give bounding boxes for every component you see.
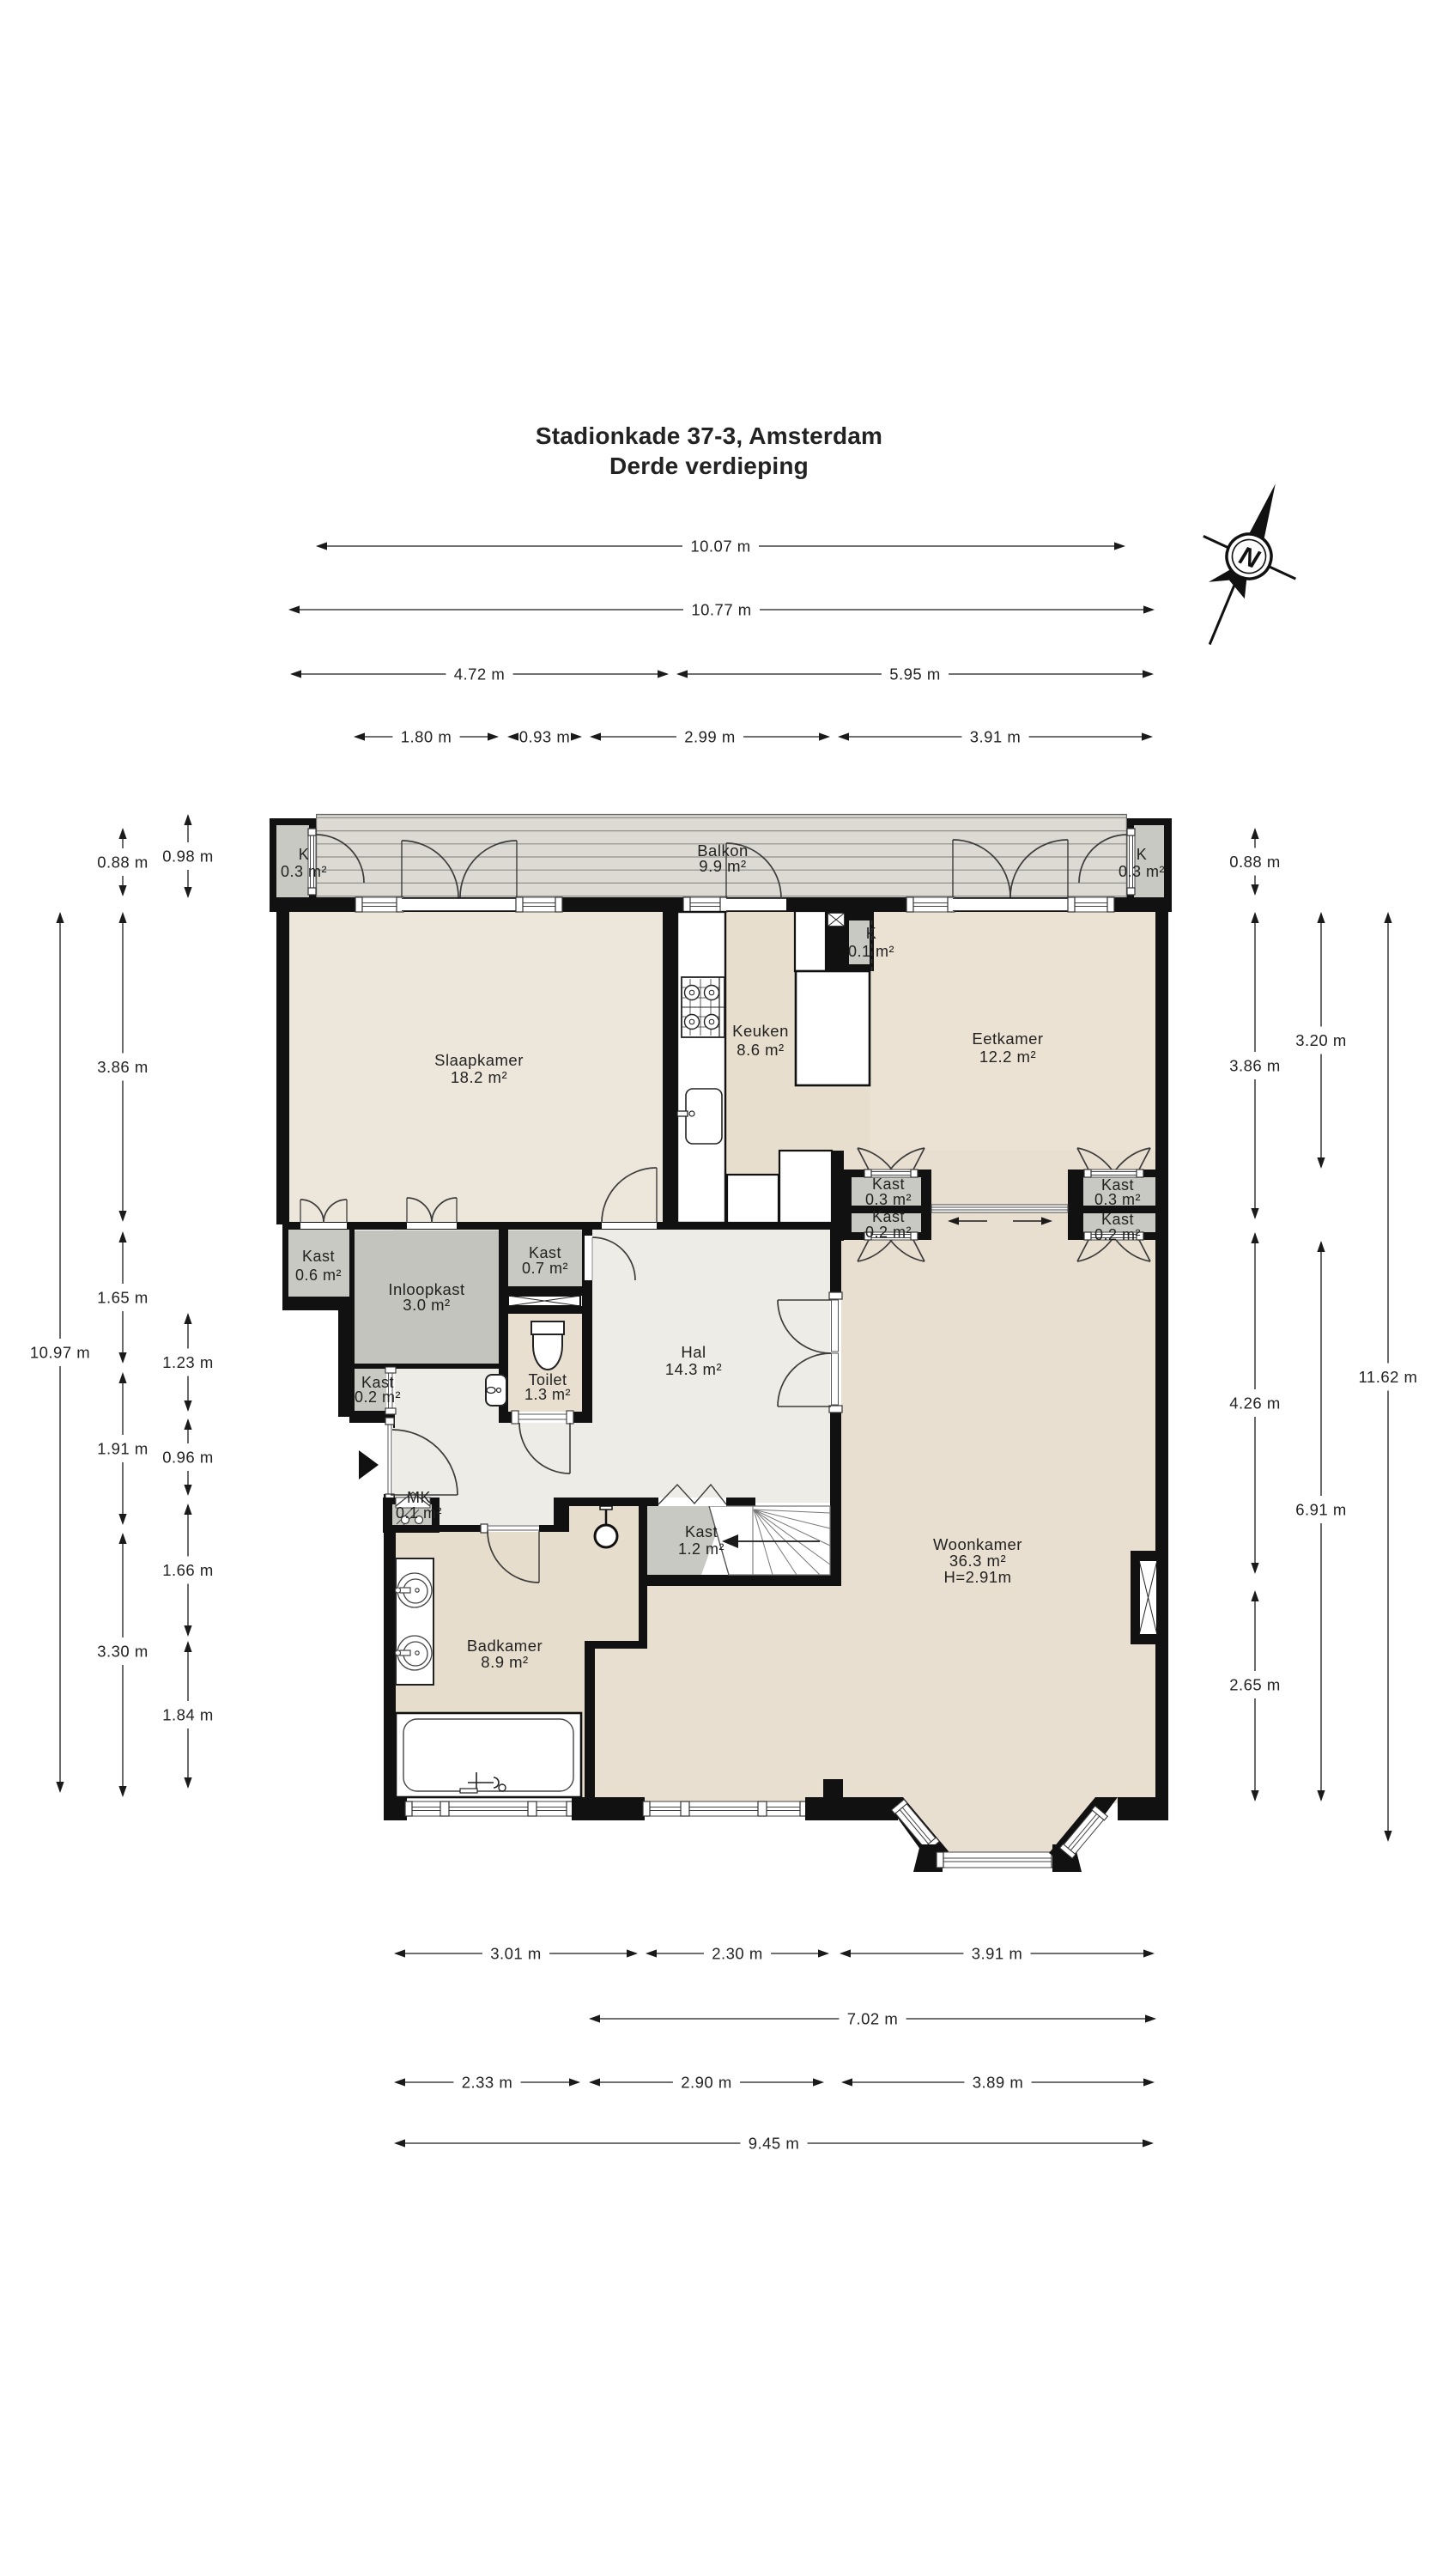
svg-text:0.93 m: 0.93 m — [519, 728, 571, 746]
svg-text:2.33 m: 2.33 m — [462, 2074, 513, 2092]
svg-text:3.20 m: 3.20 m — [1295, 1031, 1347, 1049]
svg-text:9.9 m²: 9.9 m² — [699, 857, 746, 875]
svg-text:0.88 m: 0.88 m — [97, 854, 149, 872]
svg-text:8.6 m²: 8.6 m² — [737, 1041, 784, 1059]
svg-text:3.89 m: 3.89 m — [973, 2074, 1024, 2092]
svg-text:0.96 m: 0.96 m — [162, 1449, 214, 1467]
svg-text:0.3 m²: 0.3 m² — [1119, 863, 1165, 880]
svg-text:3.01 m: 3.01 m — [490, 1945, 542, 1963]
svg-text:MK: MK — [407, 1489, 431, 1506]
svg-text:0.7 m²: 0.7 m² — [522, 1260, 568, 1277]
svg-text:0.1 m²: 0.1 m² — [396, 1504, 442, 1522]
svg-text:3.91 m: 3.91 m — [970, 728, 1022, 746]
svg-text:Kast: Kast — [302, 1248, 335, 1265]
svg-text:4.72 m: 4.72 m — [454, 665, 506, 683]
svg-text:36.3 m²: 36.3 m² — [949, 1552, 1006, 1570]
svg-text:1.66 m: 1.66 m — [162, 1561, 214, 1579]
svg-text:9.45 m: 9.45 m — [749, 2135, 800, 2153]
svg-text:Kast: Kast — [685, 1523, 718, 1540]
svg-text:12.2 m²: 12.2 m² — [979, 1048, 1036, 1066]
svg-text:Keuken: Keuken — [732, 1022, 789, 1040]
svg-text:1.91 m: 1.91 m — [97, 1440, 149, 1458]
svg-text:Hal: Hal — [681, 1343, 706, 1361]
svg-text:1.84 m: 1.84 m — [162, 1706, 214, 1724]
svg-text:3.91 m: 3.91 m — [972, 1945, 1023, 1963]
svg-text:2.65 m: 2.65 m — [1229, 1676, 1281, 1694]
svg-text:Stadionkade 37-3, Amsterdam: Stadionkade 37-3, Amsterdam — [536, 422, 882, 449]
svg-text:Woonkamer: Woonkamer — [933, 1535, 1022, 1553]
svg-text:0.2 m²: 0.2 m² — [1094, 1226, 1141, 1243]
svg-text:1.3 m²: 1.3 m² — [524, 1386, 571, 1403]
svg-text:14.3 m²: 14.3 m² — [665, 1360, 722, 1378]
svg-text:K: K — [299, 846, 310, 863]
svg-text:10.07 m: 10.07 m — [690, 538, 750, 556]
svg-text:Slaapkamer: Slaapkamer — [434, 1051, 524, 1069]
svg-text:0.98 m: 0.98 m — [162, 848, 214, 866]
svg-text:K: K — [1137, 846, 1148, 863]
svg-text:1.23 m: 1.23 m — [162, 1353, 214, 1371]
svg-text:0.6 m²: 0.6 m² — [295, 1267, 342, 1284]
svg-text:3.30 m: 3.30 m — [97, 1643, 149, 1661]
svg-text:0.2 m²: 0.2 m² — [865, 1224, 912, 1241]
svg-text:K: K — [866, 925, 877, 942]
svg-text:6.91 m: 6.91 m — [1295, 1501, 1347, 1519]
svg-text:0.3 m²: 0.3 m² — [1094, 1191, 1141, 1208]
svg-text:2.30 m: 2.30 m — [712, 1945, 763, 1963]
svg-text:2.99 m: 2.99 m — [684, 728, 736, 746]
svg-text:1.2 m²: 1.2 m² — [678, 1540, 724, 1558]
svg-text:Badkamer: Badkamer — [467, 1637, 543, 1655]
svg-text:Kast: Kast — [872, 1176, 905, 1193]
svg-text:7.02 m: 7.02 m — [847, 2010, 899, 2028]
svg-text:3.86 m: 3.86 m — [1229, 1057, 1281, 1075]
svg-text:3.0 m²: 3.0 m² — [403, 1296, 450, 1314]
svg-text:1.80 m: 1.80 m — [401, 728, 452, 746]
svg-text:Kast: Kast — [872, 1208, 905, 1225]
svg-text:0.2 m²: 0.2 m² — [355, 1388, 401, 1406]
svg-text:18.2 m²: 18.2 m² — [451, 1068, 507, 1086]
svg-text:10.77 m: 10.77 m — [691, 601, 751, 619]
svg-text:0.3 m²: 0.3 m² — [281, 863, 327, 880]
svg-text:5.95 m: 5.95 m — [889, 665, 941, 683]
svg-text:0.3 m²: 0.3 m² — [865, 1191, 912, 1208]
svg-text:Kast: Kast — [529, 1244, 561, 1261]
svg-text:10.97 m: 10.97 m — [30, 1344, 90, 1362]
svg-text:Eetkamer: Eetkamer — [972, 1030, 1043, 1048]
svg-text:11.62 m: 11.62 m — [1359, 1368, 1418, 1386]
svg-text:H=2.91m: H=2.91m — [943, 1568, 1011, 1586]
svg-text:8.9 m²: 8.9 m² — [481, 1653, 528, 1671]
svg-text:0.1 m²: 0.1 m² — [848, 943, 894, 960]
svg-text:4.26 m: 4.26 m — [1229, 1394, 1281, 1413]
svg-text:Derde verdieping: Derde verdieping — [609, 453, 809, 479]
svg-text:2.90 m: 2.90 m — [681, 2074, 732, 2092]
svg-text:0.88 m: 0.88 m — [1229, 853, 1281, 871]
svg-text:3.86 m: 3.86 m — [97, 1058, 149, 1076]
svg-text:1.65 m: 1.65 m — [97, 1289, 149, 1307]
svg-text:Kast: Kast — [1101, 1211, 1134, 1228]
